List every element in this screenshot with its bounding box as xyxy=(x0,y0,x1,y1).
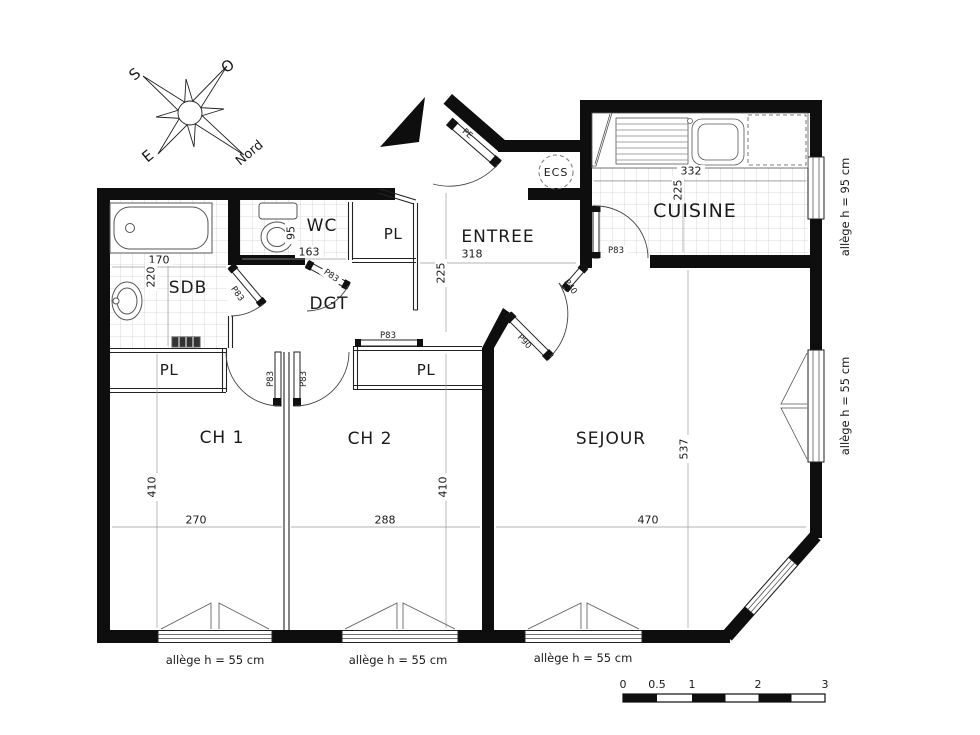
partition-pl-ch2-top xyxy=(353,347,482,351)
partition-pl-entree-right xyxy=(414,203,418,310)
floor-plan-page: S O E Nord xyxy=(0,0,980,735)
door-label-ch2-closet: P83 xyxy=(380,331,396,341)
partition-pl-ch2-bottom xyxy=(353,386,482,390)
room-label-ch2: CH 2 xyxy=(348,429,393,449)
wall-bottom-2 xyxy=(272,630,342,643)
dim-sejour-width: 470 xyxy=(638,514,659,527)
door-label-cuisine: P83 xyxy=(608,246,624,256)
partition-pl-ch2-left xyxy=(354,346,358,390)
room-label-ecs: ECS xyxy=(544,166,569,179)
dim-ch2-height: 410 xyxy=(437,477,450,498)
scale-tick-0: 0 xyxy=(620,678,627,691)
window-sejour-bottom xyxy=(525,603,642,643)
floor-plan-svg: S O E Nord xyxy=(0,0,980,735)
scale-bar: 0 0.5 1 2 3 xyxy=(620,678,829,702)
partition-sdb-bottom xyxy=(110,349,226,353)
dim-entree-height: 225 xyxy=(435,263,448,284)
compass-label-north: Nord xyxy=(233,138,266,169)
dim-ch1-height: 410 xyxy=(146,477,159,498)
kitchen-faucet xyxy=(688,119,693,124)
caption-window-cuisine: allège h = 95 cm xyxy=(838,158,852,257)
wall-cuisine-left xyxy=(580,113,592,268)
kitchen-counter xyxy=(592,113,808,168)
room-label-pl-ch2: PL xyxy=(417,361,436,379)
kitchen-drainboard xyxy=(616,118,688,164)
room-label-pl-entree: PL xyxy=(384,225,403,243)
window-cuisine-right xyxy=(808,157,824,219)
scale-tick-2: 2 xyxy=(755,678,762,691)
partition-wc-right xyxy=(349,202,353,260)
room-label-ch1: CH 1 xyxy=(200,428,245,448)
dim-wc-fixture: 95 xyxy=(285,226,298,240)
dim-entree-width: 318 xyxy=(462,248,483,261)
wall-right-a xyxy=(810,113,822,157)
wall-cuisine-top xyxy=(580,100,822,113)
wall-wc-bottom xyxy=(228,255,305,265)
dim-sdb-height: 220 xyxy=(145,267,158,288)
partition-pl-ch1-bottom xyxy=(110,389,226,393)
wall-landing-triangle xyxy=(380,97,425,147)
dim-cuisine-width: 332 xyxy=(681,165,702,178)
dim-wc-width: 163 xyxy=(299,246,320,259)
room-label-dgt: DGT xyxy=(309,294,348,314)
window-sejour-diagonal xyxy=(745,557,798,614)
window-sejour-right xyxy=(781,350,824,462)
window-ch1 xyxy=(158,603,272,643)
caption-window-ch1: allège h = 55 cm xyxy=(166,653,265,667)
wall-ecs-top xyxy=(498,140,582,152)
door-sejour-main xyxy=(504,283,567,361)
wall-bottom-1 xyxy=(97,630,158,643)
wall-right-b xyxy=(810,219,822,350)
room-label-entree: ENTREE xyxy=(461,227,534,247)
wall-cuisine-bottom xyxy=(650,255,810,268)
partition-pl-entree-bottom xyxy=(352,259,416,263)
room-label-wc: WC xyxy=(307,216,338,236)
room-label-pl-ch1: PL xyxy=(160,361,179,379)
scale-tick-3: 3 xyxy=(822,678,829,691)
wall-ch2-sejour xyxy=(482,348,494,630)
room-label-cuisine: CUISINE xyxy=(653,200,737,222)
scale-tick-1: 1 xyxy=(689,678,696,691)
scale-tick-05: 0.5 xyxy=(648,678,666,691)
wall-left xyxy=(97,188,110,643)
dim-ch1-width: 270 xyxy=(186,514,207,527)
compass-label-east: E xyxy=(138,146,157,166)
door-label-ch1: P83 xyxy=(266,371,276,387)
door-label-ch2: P83 xyxy=(299,371,309,387)
kitchen-appliance-dashed xyxy=(748,115,806,165)
room-label-sejour: SEJOUR xyxy=(576,429,646,449)
wall-bottom-4 xyxy=(642,630,730,643)
compass-center xyxy=(178,101,202,125)
dim-cuisine-height: 225 xyxy=(672,180,685,201)
caption-window-sejour-side: allège h = 55 cm xyxy=(838,357,852,456)
room-label-sdb: SDB xyxy=(169,278,208,298)
sdb-sink xyxy=(112,282,142,320)
dim-sejour-height: 537 xyxy=(678,439,691,460)
dim-ch2-width: 288 xyxy=(375,514,396,527)
wall-sdb-wc-divider xyxy=(228,200,240,255)
window-ch2 xyxy=(342,603,458,643)
compass-rose: S O E Nord xyxy=(125,55,266,169)
bathtub xyxy=(110,203,212,253)
caption-window-ch2: allège h = 55 cm xyxy=(349,653,448,667)
wall-bottom-3 xyxy=(458,630,525,643)
wall-top xyxy=(97,188,395,200)
wall-right-c xyxy=(810,462,822,538)
compass-label-south: S xyxy=(125,64,144,84)
caption-window-sejour-bottom: allège h = 55 cm xyxy=(534,651,633,665)
partition-sdb-door-jamb xyxy=(229,316,233,348)
wall-ecs-bottom xyxy=(528,188,580,200)
partition-ch1-ch2 xyxy=(284,352,289,630)
